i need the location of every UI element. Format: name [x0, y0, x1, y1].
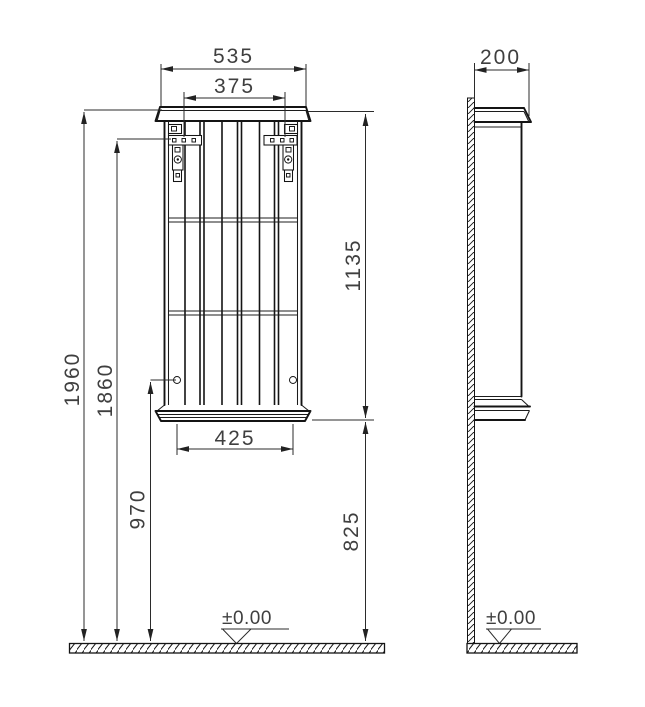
floor-level-label-side: ±0.00 — [486, 608, 536, 629]
dim-label-1135: 1135 — [342, 238, 365, 291]
dim-fixing-height: 970 — [127, 380, 177, 641]
side-base-molding — [475, 397, 531, 421]
dim-label-535: 535 — [213, 45, 254, 68]
ground-line-side — [467, 644, 577, 654]
ground-line-front — [70, 644, 385, 654]
dim-label-1860: 1860 — [94, 363, 117, 418]
datum-triangle-icon — [223, 629, 252, 644]
dim-clearance-below: 825 — [340, 422, 366, 641]
front-view — [156, 107, 311, 421]
dim-label-375: 375 — [214, 75, 255, 98]
dim-hanger-spacing: 375 — [184, 75, 285, 137]
datum-triangle-icon — [488, 629, 512, 644]
wall-section — [468, 98, 475, 644]
dim-hanger-height: 1860 — [94, 139, 171, 641]
crown-molding — [156, 107, 311, 121]
dim-label-425: 425 — [214, 427, 255, 450]
floor-datum-side: ±0.00 — [486, 608, 541, 644]
floor-level-label-front: ±0.00 — [222, 608, 272, 629]
dim-cabinet-height: 1135 — [308, 112, 374, 421]
drawing-canvas: 535 375 1960 1860 970 1135 825 425 ±0.00 — [0, 0, 645, 707]
base-molding — [156, 405, 311, 421]
cabinet-technical-drawing: 535 375 1960 1860 970 1135 825 425 ±0.00 — [0, 0, 645, 707]
dim-label-200: 200 — [480, 46, 521, 69]
dim-depth: 200 — [475, 46, 530, 116]
fixing-hole-right — [290, 377, 297, 384]
floor-datum-front: ±0.00 — [221, 608, 289, 644]
hanging-bracket-right — [264, 125, 298, 182]
dim-label-1960: 1960 — [61, 352, 84, 407]
dim-label-825: 825 — [340, 510, 363, 551]
dim-fixing-spacing: 425 — [177, 424, 293, 455]
dim-label-970: 970 — [127, 488, 150, 529]
side-crown-molding — [475, 108, 532, 122]
back-panel-planks — [185, 121, 279, 405]
side-view — [468, 98, 532, 644]
